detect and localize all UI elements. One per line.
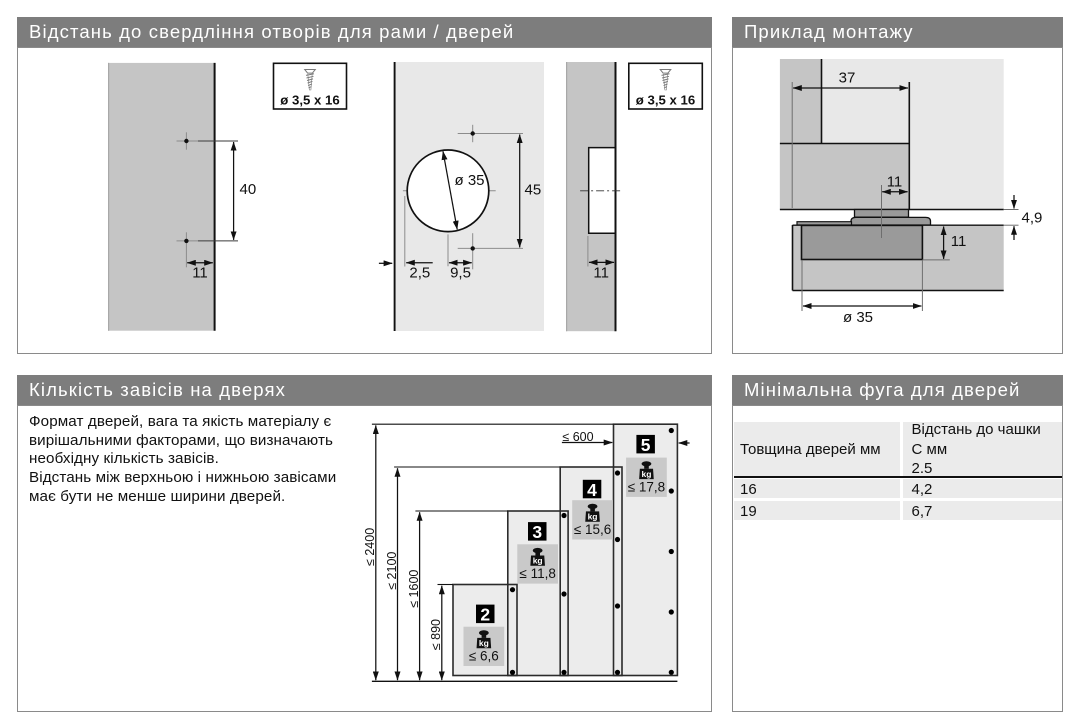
- svg-text:4,9: 4,9: [1022, 210, 1043, 227]
- svg-text:ø 35: ø 35: [455, 172, 485, 189]
- svg-text:2,5: 2,5: [409, 265, 430, 282]
- svg-text:≤ 890: ≤ 890: [429, 619, 443, 650]
- svg-text:2: 2: [480, 605, 490, 625]
- svg-text:kg: kg: [533, 556, 543, 566]
- svg-text:3: 3: [532, 522, 542, 542]
- svg-text:11: 11: [951, 233, 967, 250]
- svg-text:9,5: 9,5: [450, 265, 471, 282]
- svg-text:ø 3,5 x 16: ø 3,5 x 16: [636, 93, 695, 108]
- svg-text:≤ 17,8: ≤ 17,8: [628, 479, 665, 494]
- svg-text:≤ 11,8: ≤ 11,8: [519, 566, 555, 581]
- svg-text:5: 5: [641, 435, 651, 455]
- svg-text:kg: kg: [641, 469, 651, 479]
- svg-text:≤ 6,6: ≤ 6,6: [469, 649, 499, 664]
- svg-text:40: 40: [240, 181, 257, 198]
- svg-text:≤ 1600: ≤ 1600: [407, 570, 421, 608]
- svg-text:11: 11: [593, 264, 609, 281]
- svg-text:kg: kg: [479, 638, 489, 648]
- svg-text:≤ 600: ≤ 600: [562, 430, 593, 444]
- svg-text:37: 37: [839, 70, 856, 87]
- svg-text:≤ 15,6: ≤ 15,6: [574, 522, 611, 537]
- svg-text:45: 45: [525, 182, 542, 199]
- svg-text:11: 11: [192, 265, 208, 282]
- svg-text:≤ 2100: ≤ 2100: [385, 552, 399, 590]
- svg-text:4: 4: [587, 480, 597, 500]
- svg-text:11: 11: [887, 174, 903, 191]
- svg-text:ø 35: ø 35: [843, 309, 873, 326]
- svg-text:≤ 2400: ≤ 2400: [363, 528, 377, 566]
- svg-text:ø 3,5 x 16: ø 3,5 x 16: [280, 93, 339, 108]
- svg-text:kg: kg: [588, 512, 598, 522]
